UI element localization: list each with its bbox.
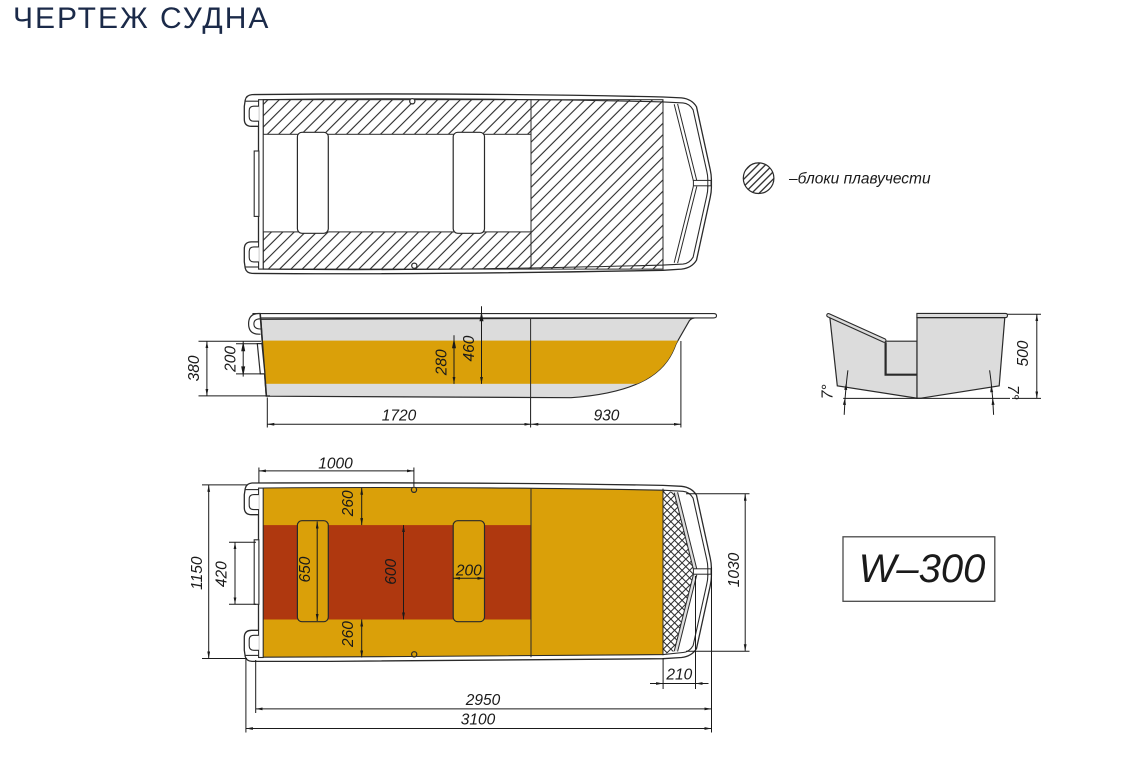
svg-text:200: 200 xyxy=(223,346,240,373)
svg-text:7°: 7° xyxy=(820,384,837,399)
svg-text:600: 600 xyxy=(383,558,400,584)
svg-text:1000: 1000 xyxy=(318,455,353,472)
svg-text:7°: 7° xyxy=(1004,385,1021,400)
svg-text:–блоки плавучести: –блоки плавучести xyxy=(788,171,931,188)
svg-text:260: 260 xyxy=(340,621,357,648)
svg-text:500: 500 xyxy=(1015,340,1032,366)
svg-text:460: 460 xyxy=(461,335,478,361)
svg-text:210: 210 xyxy=(665,667,692,684)
svg-text:2950: 2950 xyxy=(465,692,501,709)
svg-text:200: 200 xyxy=(455,562,482,579)
svg-text:420: 420 xyxy=(214,561,231,587)
svg-text:260: 260 xyxy=(340,490,357,517)
svg-text:930: 930 xyxy=(594,408,620,425)
svg-text:1030: 1030 xyxy=(726,552,743,587)
svg-text:W–300: W–300 xyxy=(859,547,986,591)
svg-text:3100: 3100 xyxy=(461,712,496,729)
svg-text:1720: 1720 xyxy=(382,408,417,425)
svg-text:280: 280 xyxy=(434,349,451,376)
svg-text:1150: 1150 xyxy=(189,556,206,590)
svg-text:650: 650 xyxy=(297,556,314,582)
svg-text:380: 380 xyxy=(186,355,203,381)
